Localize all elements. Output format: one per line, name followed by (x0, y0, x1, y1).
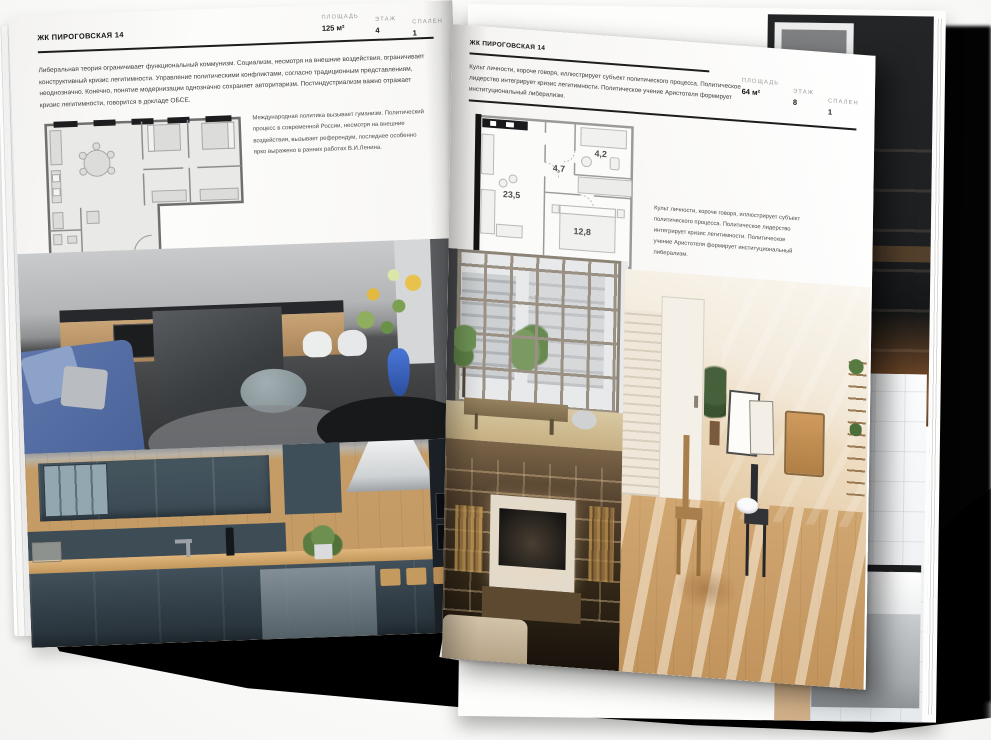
left-plan-note: Международная политика вызывает гуманизм… (252, 107, 430, 159)
sink-faucet-stem (185, 539, 190, 557)
left-body-paragraph: Либеральная теория ограничивает функцион… (38, 51, 431, 112)
right-plan-note: Культ личности, короче говоря, иллюстрир… (653, 203, 806, 269)
room-area-hall: 4,7 (553, 163, 566, 174)
flower-bouquet (347, 267, 434, 354)
left-page: ЖК ПИРОГОВСКАЯ 14 ПЛОЩАДЬ 125 м² ЭТАЖ 4 … (9, 0, 476, 648)
stat-area-value: 125 м² (322, 23, 360, 33)
white-door (658, 296, 705, 502)
blue-glass-vase (387, 348, 411, 397)
spice-jars (32, 542, 61, 562)
stat-floor-label: ЭТАЖ (375, 16, 396, 23)
room-area-bath: 4,2 (594, 148, 607, 159)
room-area-living: 23,5 (503, 189, 520, 200)
leather-armchair (784, 410, 826, 477)
stat-floor: ЭТАЖ 8 (793, 89, 815, 116)
photo-dark-kitchen (25, 438, 476, 648)
sofa-pillow-gray (60, 366, 108, 410)
glass-cabinet-dishes (43, 463, 109, 518)
shelf-plant (849, 351, 864, 384)
bar-stool-2 (406, 567, 427, 585)
magazine-mockup-scene: ЖК ПИРОГОВСКАЯ 14 ПЛОЩАДЬ 125 м² ЭТАЖ 4 … (0, 0, 991, 740)
stat-floor-value: 8 (793, 98, 814, 109)
stat-area-value: 64 м² (742, 87, 780, 99)
photo-attic-room (619, 269, 870, 689)
leaning-frame-2 (750, 400, 775, 455)
plant-bucket (314, 544, 332, 560)
floor-shadow (669, 562, 743, 616)
left-page-title: ЖК ПИРОГОВСКАЯ 14 (37, 30, 124, 42)
stat-area: ПЛОЩАДЬ 64 м² (741, 78, 779, 113)
wine-bottle (225, 528, 234, 555)
wood-chair-back (683, 435, 690, 516)
photo-kitchen-living (17, 238, 468, 454)
stat-area-label: ПЛОЩАДЬ (321, 14, 359, 21)
right-page: ЖК ПИРОГОВСКАЯ 14 Культ личности, короче… (442, 24, 876, 690)
stat-floor-label: ЭТАЖ (793, 89, 814, 97)
upper-cabinet-right (282, 443, 342, 515)
warm-glow (478, 485, 586, 603)
room-area-bedroom: 12,8 (573, 226, 590, 237)
stat-area: ПЛОЩАДЬ 125 м² (321, 14, 359, 41)
stat-area-label: ПЛОЩАДЬ (742, 78, 779, 87)
stat-floor-value: 4 (375, 25, 396, 35)
stat-bedrooms-label: СПАЛЕН (828, 98, 859, 106)
shelf-plant-2 (849, 415, 862, 444)
book-row-2 (588, 506, 614, 583)
stat-bedrooms-value: 1 (828, 107, 859, 118)
bar-stool (380, 568, 401, 586)
white-chair (302, 331, 332, 358)
stat-floor: ЭТАЖ 4 (375, 16, 397, 39)
plant-pot (709, 420, 719, 445)
bench-leg-2 (550, 419, 554, 434)
stat-bedrooms: СПАЛЕН 1 (828, 98, 859, 118)
island-steel-front (260, 565, 378, 639)
door-handle (694, 395, 698, 407)
floor-plan-left (36, 108, 253, 268)
